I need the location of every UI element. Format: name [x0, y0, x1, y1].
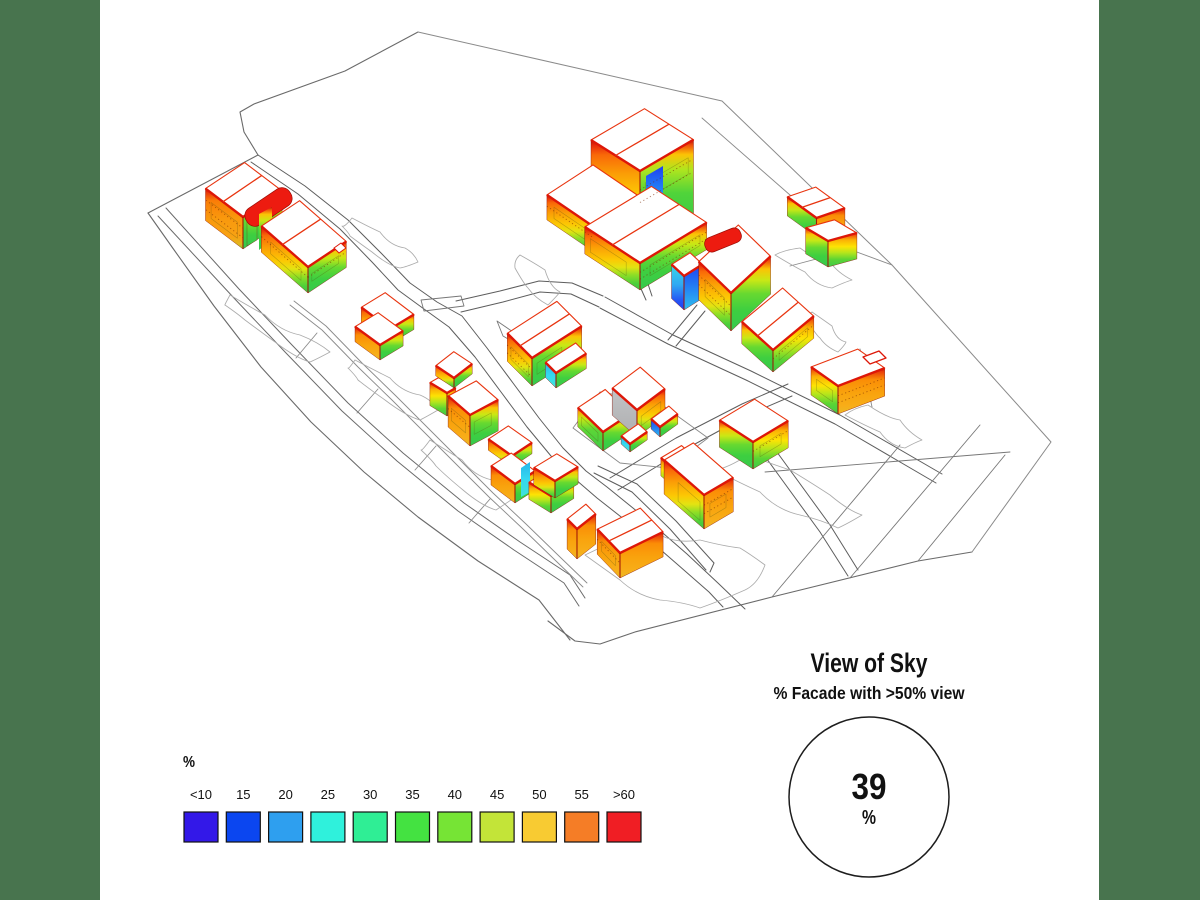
svg-text:<10: <10 — [190, 787, 212, 802]
svg-text:%: % — [183, 754, 195, 771]
svg-text:%: % — [862, 807, 876, 829]
svg-text:15: 15 — [236, 787, 250, 802]
svg-text:55: 55 — [574, 787, 588, 802]
svg-text:50: 50 — [532, 787, 546, 802]
svg-text:% Facade with >50% view: % Facade with >50% view — [774, 683, 965, 703]
svg-text:20: 20 — [278, 787, 292, 802]
svg-text:39: 39 — [852, 766, 887, 807]
svg-text:35: 35 — [405, 787, 419, 802]
svg-text:40: 40 — [448, 787, 462, 802]
svg-text:30: 30 — [363, 787, 377, 802]
svg-text:25: 25 — [321, 787, 335, 802]
svg-text:View of Sky: View of Sky — [811, 648, 928, 678]
svg-text:45: 45 — [490, 787, 504, 802]
svg-text:>60: >60 — [613, 787, 635, 802]
